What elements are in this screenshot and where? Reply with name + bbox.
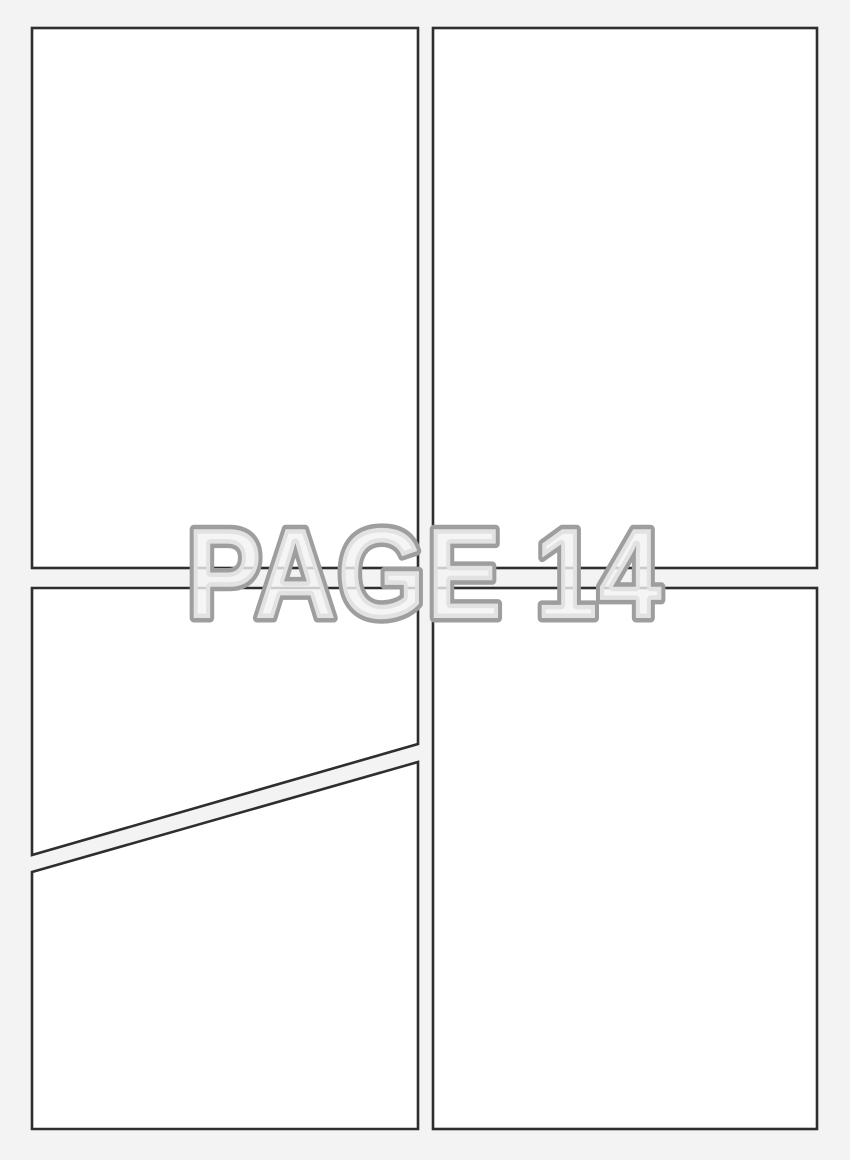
comic-page-canvas: PAGE 14 (0, 0, 850, 1160)
comic-page-template: PAGE 14 (0, 0, 850, 1160)
page-number-watermark: PAGE 14 (186, 502, 662, 646)
panel-bottom-right (433, 588, 817, 1129)
panel-top-right (433, 28, 817, 568)
panel-top-left (32, 28, 418, 568)
